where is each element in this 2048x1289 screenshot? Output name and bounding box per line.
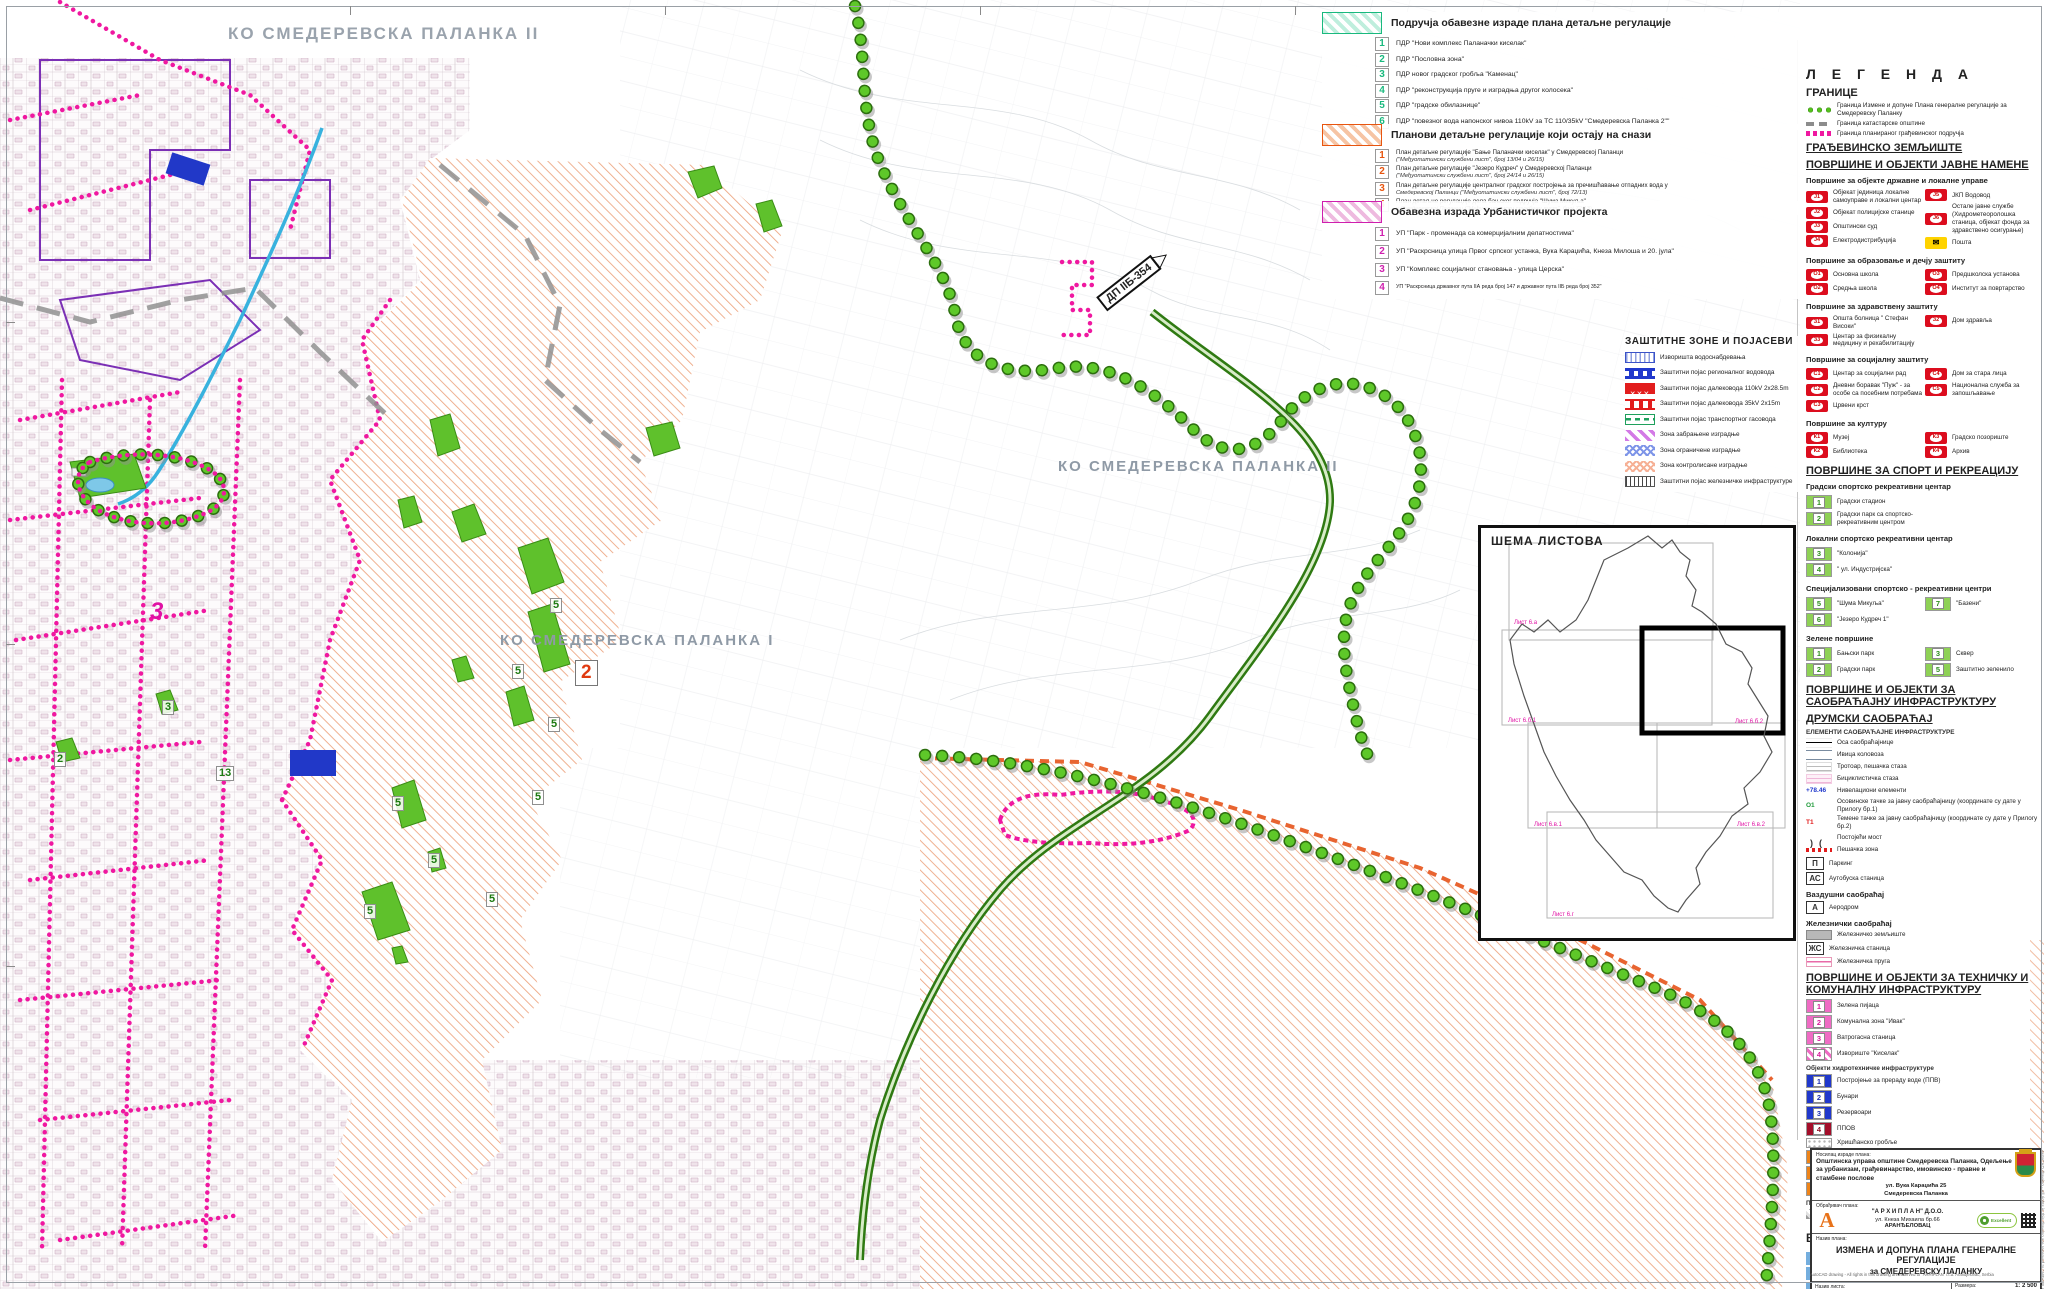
group-title: Специјализовани спортско - рекреативни ц… — [1806, 584, 2042, 593]
legend-item-label: Национална служба за запошљавање — [1952, 382, 2042, 398]
legend-item-label: " ул. Индустријска" — [1837, 566, 1892, 574]
section-title: ДРУМСКИ САОБРАЋАЈ — [1806, 713, 2042, 725]
coat-of-arms-icon — [2015, 1152, 2036, 1177]
num-swatch: 2 — [1806, 1015, 1832, 1029]
holder-name: Општинска управа општине Смедеревска Пал… — [1816, 1158, 2016, 1183]
legend-columns: К1МузејК2БиблиотекаК3Градско позориштеК4… — [1806, 430, 2042, 460]
author-city: АРАНЂЕЛОВАЦ — [1842, 1223, 1973, 1231]
group-title: Површине за објекте државне и локалне уп… — [1806, 176, 2042, 185]
mdots-swatch — [1806, 131, 1832, 136]
num-swatch: 3 — [1925, 647, 1951, 661]
legend-item: +78.46Нивелациони елементи — [1806, 786, 2042, 796]
legend-item: О1Основна школа — [1806, 269, 1923, 281]
legend-item-label: ПДР "градске обилазнице" — [1396, 99, 1480, 109]
badge-code: Ј1 — [1811, 194, 1822, 202]
legend-item-label: Бициклистичка стаза — [1837, 775, 1899, 783]
legend-item-label: Бањски парк — [1837, 650, 1874, 658]
legend-item: О4Институт за повртарство — [1925, 283, 2042, 295]
legend-item-label: Градски парк — [1837, 666, 1875, 674]
legend-item-label: "Шума Микуља" — [1837, 600, 1884, 608]
num-swatch-label: 3 — [1813, 1033, 1825, 1044]
legend-columns: С1Центар за социјални радС2Дневни борава… — [1806, 366, 2042, 414]
num-swatch: 2 — [1806, 512, 1832, 526]
use-badge-icon: Ј3 — [1806, 221, 1828, 233]
scale-label: Размера: — [1955, 1283, 1976, 1289]
legend-item-label: Музеј — [1833, 434, 1849, 442]
legend-columns: 1Бањски парк2Градски парк3Сквер5Заштитно… — [1806, 645, 2042, 679]
legend-item-label: Аеродром — [1829, 904, 1859, 912]
dv110-swatch — [1625, 383, 1655, 394]
item-line1: План детаљне регулације "Бање Паланачки … — [1396, 149, 1623, 157]
num-swatch-label: 1 — [1813, 1076, 1825, 1087]
legend-columns: Ј1Објекат јединица локалне самоуправе и … — [1806, 187, 2042, 250]
legend-item-label: УП "Комплекс социјалног становања - улиц… — [1396, 263, 1564, 273]
group-title: Локални спортско рекреативни центар — [1806, 534, 2042, 543]
num-swatch: 6 — [1806, 613, 1832, 627]
use-badge-icon: С4 — [1925, 368, 1947, 380]
legend-item: 5ПДР "градске обилазнице" — [1375, 99, 1802, 113]
legend-item: Ј6Остале јавне службе (Хидрометеоролошка… — [1925, 203, 2042, 234]
sheet-scheme-box: ШЕМА ЛИСТОВА Лист 6.а Лист 6.б.1 Лист 6.… — [1478, 525, 1796, 941]
use-badge-icon: О4 — [1925, 283, 1947, 295]
plan-sheet: КО СМЕДЕРЕВСКА ПАЛАНКА II КО СМЕДЕРЕВСКА… — [0, 0, 2048, 1289]
group-title: Површине за социјалну заштиту — [1806, 355, 2042, 364]
num-swatch-label: 4 — [1813, 1049, 1825, 1060]
num-swatch-label: 3 — [1813, 1108, 1825, 1119]
legend-item: О3Предшколска установа — [1925, 269, 2042, 281]
legend-item-label: "Језеро Кудреч 1" — [1837, 616, 1889, 624]
green-area-marker: 5 — [548, 717, 560, 732]
legend-item: 3Резервоари — [1806, 1106, 2042, 1120]
legend-item: З1Општа болница " Стефан Високи" — [1806, 315, 1923, 331]
legend-item-label: Предшколска установа — [1952, 271, 2020, 279]
legend-item-label: Заштитни појас далековода 110kV 2x28.5m — [1660, 385, 1789, 393]
legend-item: 2ПДР "Пословна зона" — [1375, 53, 1802, 67]
num-swatch: 2 — [1806, 663, 1832, 677]
legend-item: Железничко земљиште — [1806, 930, 2042, 940]
legend-item: К2Библиотека — [1806, 446, 1923, 458]
legend-item-label: УП "Раскрсница државног пута IIА реда бр… — [1396, 281, 1602, 290]
legend-block-title: Обавезна израда Урбанистичког пројекта — [1391, 206, 1608, 218]
legend-item: 1УП "Парк - променада са комерцијалним д… — [1375, 227, 1802, 241]
legend-item: К4Архив — [1925, 446, 2042, 458]
dv35-swatch — [1625, 399, 1655, 410]
legend-item-label: Библиотека — [1833, 448, 1867, 456]
kontr-swatch — [1625, 461, 1655, 472]
legend-item: 1План детаљне регулације "Бање Паланачки… — [1375, 149, 1802, 164]
legend-item: Граница Измене и допуне Плана генералне … — [1806, 102, 2042, 118]
num-swatch-label: 2 — [1813, 513, 1825, 524]
use-badge-icon: О2 — [1806, 283, 1828, 295]
num-swatch-label: 2 — [1813, 664, 1825, 675]
legend-item-label: Пешачка зона — [1837, 846, 1878, 854]
num-swatch: 2 — [1806, 1090, 1832, 1104]
num-swatch-label: 1 — [1813, 1001, 1825, 1012]
gas-swatch — [1625, 414, 1655, 425]
use-badge-icon: К1 — [1806, 432, 1828, 444]
legend-item: Ј2Објекат полицијске станице — [1806, 207, 1923, 219]
legend-item-label: Граница катастарске општине — [1837, 120, 1925, 128]
use-badge-icon: С1 — [1806, 368, 1828, 380]
num-swatch: 4 — [1806, 1122, 1832, 1136]
item-number: 4 — [1375, 84, 1389, 98]
legend-block-head: Обавезна израда Урбанистичког пројекта — [1322, 201, 1802, 223]
legend-item: З2Дом здравља — [1925, 315, 2042, 327]
green-area-marker: 5 — [392, 796, 404, 811]
legend-item-label: Објекат полицијске станице — [1833, 209, 1915, 217]
legend-item: 2Бунари — [1806, 1090, 2042, 1104]
excellent-badge-icon: Excellent — [1977, 1213, 2017, 1228]
badge-code: О1 — [1811, 271, 1823, 279]
legend-item-label: Зона забрањене изградње — [1660, 431, 1740, 439]
legend-item: Ј4Електродистрибуција — [1806, 235, 1923, 247]
legend-item: 4ППОВ — [1806, 1122, 2042, 1136]
legend-item: С5Национална служба за запошљавање — [1925, 382, 2042, 398]
legend-item-label: ЈКП Водовод — [1952, 192, 1990, 200]
cadastral-label-center: КО СМЕДЕРЕВСКА ПАЛАНКА I — [500, 632, 774, 649]
ped-swatch — [1806, 845, 1832, 855]
badge-code: З1 — [1811, 319, 1823, 327]
izvor-swatch — [1625, 352, 1655, 363]
badge-code: З2 — [1930, 317, 1942, 325]
green-area-marker: 5 — [532, 790, 544, 805]
regvod-swatch — [1625, 368, 1655, 379]
legend-column: 7"Базени" — [1925, 595, 2042, 629]
item-number: 1 — [1375, 149, 1389, 163]
sheet-label: Лист 6.в.1 — [1534, 822, 1562, 828]
legend-item: К1Музеј — [1806, 432, 1923, 444]
section-title: ПОВРШИНЕ ЗА СПОРТ И РЕКРЕАЦИЈУ — [1806, 465, 2042, 477]
legend-item-label: Аутобуска станица — [1829, 875, 1884, 883]
title-block: Носилац израде плана: Општинска управа о… — [1810, 1148, 2042, 1289]
legend-item: 2УП "Раскрсница улица Првог српског уста… — [1375, 245, 1802, 259]
legend-item-label: Зона контролисане изградње — [1660, 462, 1747, 470]
legend-item-label: Железничка станица — [1829, 945, 1890, 953]
legend-item-label: УП "Раскрсница улица Првог српског устан… — [1396, 245, 1674, 255]
legend-item-label: Граница Измене и допуне Плана генералне … — [1837, 102, 2042, 118]
legend-item: ЖСЖелезничка станица — [1806, 942, 2042, 955]
section-title: ПОВРШИНЕ И ОБЈЕКТИ ЗА ТЕХНИЧКУ И КОМУНАЛ… — [1806, 972, 2042, 996]
legend-item-label: Заштитни појас далековода 35kV 2x15m — [1660, 400, 1780, 408]
badge-code: Ј3 — [1811, 223, 1822, 231]
green-area-marker: 5 — [428, 853, 440, 868]
legend-block-urban-projects: Обавезна израда Урбанистичког пројекта1У… — [1322, 201, 1802, 299]
holder-city: Смедеревска Паланка — [1816, 1191, 2016, 1199]
tp-swatch: Т1 — [1806, 818, 1832, 828]
legend-columns: 1Градски стадион2Градски парк са спортск… — [1806, 493, 2042, 529]
num-swatch-label: 6 — [1813, 614, 1825, 625]
legend-item-label: Заштитни појас регионалног водовода — [1660, 369, 1774, 377]
legend-column: З2Дом здравља — [1925, 313, 2042, 350]
use-badge-icon: З3 — [1806, 334, 1828, 346]
sheet-name-label: Назив листа: — [1815, 1284, 1948, 1289]
legend-item: О2Средња школа — [1806, 283, 1923, 295]
plan-name-label: Назив плана: — [1816, 1236, 2036, 1242]
legend-block-head: Подручја обавезне израде плана детаљне р… — [1322, 12, 1802, 34]
legend-item-label: Средња школа — [1833, 285, 1877, 293]
legend-item: С1Центар за социјални рад — [1806, 368, 1923, 380]
legend-item-label: Тротоар, пешачка стаза — [1837, 763, 1907, 771]
legend-item: 2Градски парк — [1806, 663, 1923, 677]
legend-item-label: УП "Парк - променада са комерцијалним де… — [1396, 227, 1574, 237]
item-number: 1 — [1375, 37, 1389, 51]
legend-item: 3УП "Комплекс социјалног становања - ули… — [1375, 263, 1802, 277]
legend-item: Ј1Објекат јединица локалне самоуправе и … — [1806, 189, 1923, 205]
legend-item: 1Бањски парк — [1806, 647, 1923, 661]
num-swatch-label: 5 — [1813, 598, 1825, 609]
legend-item-label: Постојећи мост — [1837, 834, 1882, 842]
use-badge-icon: С3 — [1806, 400, 1828, 412]
num-swatch-label: 1 — [1813, 648, 1825, 659]
legend-item-label: Архив — [1952, 448, 1970, 456]
zabr-swatch — [1625, 430, 1655, 441]
use-badge-icon: З1 — [1806, 317, 1828, 329]
legend-columns: 3"Колонија"4" ул. Индустријска" — [1806, 545, 2042, 579]
legend-item: 4" ул. Индустријска" — [1806, 563, 1923, 577]
num-swatch: 3 — [1806, 547, 1832, 561]
legend-item: 2План детаљне регулације "Језеро Кудреч"… — [1375, 165, 1802, 180]
legend-item-label: План детаљне регулације "Језеро Кудреч" … — [1396, 165, 1592, 180]
sheet-label: Лист 6.а — [1514, 620, 1537, 626]
legend-item: 6"Језеро Кудреч 1" — [1806, 613, 1923, 627]
zel-swatch — [1625, 476, 1655, 487]
legend-column: К3Градско позориштеК4Архив — [1925, 430, 2042, 460]
legend-column: О1Основна школаО2Средња школа — [1806, 267, 1923, 297]
legend-item: 1Постројење за прераду воде (ППВ) — [1806, 1074, 2042, 1088]
hatch-swatch — [1322, 201, 1382, 223]
pdr-zone-marker: 2 — [575, 660, 598, 686]
legend-item: ААеродром — [1806, 901, 2042, 914]
box-swatch: ЖС — [1806, 942, 1824, 955]
ivica-swatch — [1806, 750, 1832, 760]
railland-swatch — [1806, 930, 1832, 940]
legend-item: Тротоар, пешачка стаза — [1806, 762, 2042, 772]
legend-column: 3"Колонија"4" ул. Индустријска" — [1806, 545, 1923, 579]
legend-item-label: Општински суд — [1833, 223, 1877, 231]
niv-swatch: +78.46 — [1806, 786, 1832, 796]
hatch-swatch — [1322, 12, 1382, 34]
legend-item: 3Сквер — [1925, 647, 2042, 661]
legend-panel: Л Е Г Е Н Д АГРАНИЦЕГраница Измене и доп… — [1806, 66, 2042, 1289]
group-title: Железнички саобраћај — [1806, 919, 2042, 928]
badge-code: О2 — [1811, 285, 1823, 293]
osa-swatch — [1806, 738, 1832, 748]
legend-column: К1МузејК2Библиотека — [1806, 430, 1923, 460]
cadastral-label-right: КО СМЕДЕРЕВСКА ПАЛАНКА II — [1058, 458, 1339, 475]
legend-column — [1925, 545, 2042, 579]
num-swatch: 4 — [1806, 563, 1832, 577]
legend-item-label: Дом здравља — [1952, 317, 1992, 325]
legend-column: Ј5ЈКП ВодоводЈ6Остале јавне службе (Хидр… — [1925, 187, 2042, 250]
badge-code: ✉ — [1930, 238, 1942, 247]
section-title: ПОВРШИНЕ И ОБЈЕКТИ ЗА САОБРАЋАЈНУ ИНФРАС… — [1806, 684, 2042, 708]
copyright-note-vertical: AutoCAD drawing - All rights in this dra… — [2040, 1150, 2045, 1289]
num-swatch-label: 4 — [1813, 1124, 1825, 1135]
use-badge-icon: К2 — [1806, 446, 1828, 458]
group-title: Ваздушни саобраћај — [1806, 890, 2042, 899]
item-number: 2 — [1375, 245, 1389, 259]
sheet-label: Лист 6.б.1 — [1508, 718, 1536, 724]
item-number: 3 — [1375, 68, 1389, 82]
num-swatch: 1 — [1806, 999, 1832, 1013]
legend-item-label: "Колонија" — [1837, 550, 1868, 558]
legend-item: О1Осовинске тачке за јавну саобраћајницу… — [1806, 798, 2042, 814]
legend-item-label: Нивелациони елементи — [1837, 787, 1906, 795]
legend-item: З3Центар за физикалну медицину и рехабил… — [1806, 333, 1923, 349]
legend-item: АСАутобуска станица — [1806, 872, 2042, 885]
legend-item: С2Дневни боравак "Пуж" - за особе са пос… — [1806, 382, 1923, 398]
copyright-note: AutoCAD drawing - All rights in this dra… — [1810, 1272, 2044, 1277]
legend-item-label: ПДР "реконструкција пруге и изградња дру… — [1396, 84, 1573, 94]
legend-item: ППаркинг — [1806, 857, 2042, 870]
legend-columns: З1Општа болница " Стефан Високи"З3Центар… — [1806, 313, 2042, 350]
green-area-marker: 2 — [54, 752, 66, 767]
legend-item: Оса саобраћајнице — [1806, 738, 2042, 748]
num-swatch-label: 5 — [1932, 664, 1944, 675]
green-area-marker: 3 — [162, 700, 174, 715]
use-badge-icon: С5 — [1925, 384, 1947, 396]
use-badge-icon: С2 — [1806, 384, 1828, 396]
use-badge-icon: Ј6 — [1925, 213, 1947, 225]
bike-swatch — [1806, 774, 1832, 784]
legend-item-label: Резервоари — [1837, 1109, 1871, 1117]
cem-swatch — [1806, 1138, 1832, 1148]
item-number: 3 — [1375, 263, 1389, 277]
legend-item-label: Црвени крст — [1833, 402, 1869, 410]
legend-item-label: План детаљне регулације централног градс… — [1396, 182, 1668, 197]
item-line2: ("Међуопштински службени лист", број 24/… — [1396, 173, 1592, 180]
author-name: "А Р Х И П Л А Н" Д.О.О. — [1842, 1209, 1973, 1217]
legend-item-label: ПДР "повезног вода напонског нивоа 110kV… — [1396, 115, 1669, 125]
legend-item: Граница планираног грађевинског подручја — [1806, 130, 2042, 138]
legend-item-label: Оса саобраћајнице — [1837, 739, 1894, 747]
box-swatch: П — [1806, 857, 1824, 870]
legend-column: Ј1Објекат јединица локалне самоуправе и … — [1806, 187, 1923, 250]
green-area-marker: 5 — [486, 892, 498, 907]
legend-column: 5"Шума Микуља"6"Језеро Кудреч 1" — [1806, 595, 1923, 629]
legend-item-label: "Базени" — [1956, 600, 1981, 608]
item-number: 5 — [1375, 99, 1389, 113]
group-title: ЕЛЕМЕНТИ САОБРАЋАЈНЕ ИНФРАСТРУКТУРЕ — [1806, 729, 2042, 736]
legend-block-title: Планови детаљне регулације који остају н… — [1391, 129, 1651, 141]
num-swatch: 7 — [1925, 597, 1951, 611]
use-badge-icon: Ј2 — [1806, 207, 1828, 219]
legend-item: 3План детаљне регулације централног град… — [1375, 182, 1802, 197]
num-swatch-label: 1 — [1813, 497, 1825, 508]
badge-code: С2 — [1811, 386, 1823, 394]
legend-item: Граница катастарске општине — [1806, 120, 2042, 128]
item-line1: План детаљне регулације централног градс… — [1396, 182, 1668, 190]
group-title: Зелене површине — [1806, 634, 2042, 643]
badge-code: С5 — [1930, 386, 1942, 394]
green-area-marker: 5 — [512, 664, 524, 679]
arhiplan-logo-icon: А — [1816, 1209, 1838, 1231]
legend-item: Бициклистичка стаза — [1806, 774, 2042, 784]
legend-item: Т1Темене тачке за јавну саобраћајницу (к… — [1806, 815, 2042, 831]
badge-code: Ј5 — [1930, 192, 1941, 200]
num-swatch-label: 2 — [1813, 1017, 1825, 1028]
use-badge-icon: К4 — [1925, 446, 1947, 458]
legend-item: 1Зелена пијаца — [1806, 999, 2042, 1013]
legend-item-label: Градски стадион — [1837, 498, 1886, 506]
badge-code: О3 — [1930, 271, 1942, 279]
section-title: ПОВРШИНЕ И ОБЈЕКТИ ЈАВНЕ НАМЕНЕ — [1806, 159, 2042, 171]
use-badge-icon: Ј1 — [1806, 191, 1828, 203]
legend-item-label: Извориште "Киселак" — [1837, 1050, 1899, 1058]
legend-item-label: Темене тачке за јавну саобраћајницу (коо… — [1837, 815, 2042, 831]
legend-item-label: Центар за социјални рад — [1833, 370, 1906, 378]
legend-item: 4Извориште "Киселак" — [1806, 1047, 2042, 1061]
legend-column: С1Центар за социјални радС2Дневни борава… — [1806, 366, 1923, 414]
legend-item: 5Заштитно зеленило — [1925, 663, 2042, 677]
num-swatch-label: 2 — [1813, 1092, 1825, 1103]
legend-columns: О1Основна школаО2Средња школаО3Предшколс… — [1806, 267, 2042, 297]
item-number: 4 — [1375, 281, 1389, 295]
use-badge-icon: О3 — [1925, 269, 1947, 281]
item-number: 2 — [1375, 165, 1389, 179]
legend-item: 5"Шума Микуља" — [1806, 597, 1923, 611]
legend-item: Пешачка зона — [1806, 845, 2042, 855]
num-swatch-label: 3 — [1813, 548, 1825, 559]
legend-item-label: Изворишта водоснабдевања — [1660, 354, 1745, 362]
box-swatch: А — [1806, 901, 1824, 914]
legend-item: 3Ватрогасна станица — [1806, 1031, 2042, 1045]
qr-code-icon — [2021, 1213, 2036, 1228]
group-title: Објекти хидротехничке инфраструктуре — [1806, 1065, 2042, 1072]
use-badge-icon: З2 — [1925, 315, 1947, 327]
legend-block-title: Подручја обавезне израде плана детаљне р… — [1391, 17, 1671, 29]
legend-item-label: Пошта — [1952, 239, 1971, 247]
legend-item: 7"Базени" — [1925, 597, 2042, 611]
legend-item: 4УП "Раскрсница државног пута IIА реда б… — [1375, 281, 1802, 295]
legend-item-label: Бунари — [1837, 1093, 1858, 1101]
legend-item: 3ПДР новог градског гробља "Каменац" — [1375, 68, 1802, 82]
item-number: 1 — [1375, 227, 1389, 241]
badge-code: О4 — [1930, 285, 1942, 293]
legend-item: Ј5ЈКП Водовод — [1925, 189, 2042, 201]
legend-column: З1Општа болница " Стефан Високи"З3Центар… — [1806, 313, 1923, 350]
legend-item-label: ППОВ — [1837, 1125, 1855, 1133]
legend-item-label: Дневни боравак "Пуж" - за особе са посеб… — [1833, 382, 1923, 398]
badge-code: Ј2 — [1811, 209, 1822, 217]
badge-code: С4 — [1930, 371, 1942, 379]
num-swatch: 3 — [1806, 1106, 1832, 1120]
legend-item-label: Постројење за прераду воде (ППВ) — [1837, 1077, 1940, 1085]
num-swatch-label: 7 — [1932, 598, 1944, 609]
badge-code: З3 — [1811, 337, 1823, 345]
legend-item: Ивица коловоза — [1806, 750, 2042, 760]
sheet-scheme-map — [1481, 528, 1787, 932]
legend-item-label: Електродистрибуција — [1833, 237, 1896, 245]
legend-item-label: Зелена пијаца — [1837, 1002, 1879, 1010]
legend-item-label: Заштитно зеленило — [1956, 666, 2014, 674]
legend-item-label: Зона ограничене изградње — [1660, 447, 1741, 455]
sheet-label: Лист 6.г — [1552, 912, 1574, 918]
num-swatch: 5 — [1925, 663, 1951, 677]
legend-item: 4ПДР "реконструкција пруге и изградња др… — [1375, 84, 1802, 98]
item-number: 2 — [1375, 53, 1389, 67]
num-swatch-label: 4 — [1813, 564, 1825, 575]
sheet-label-active: Лист 6.б.2 — [1735, 719, 1763, 725]
legend-item-label: Центар за физикалну медицину и рехабилит… — [1833, 333, 1923, 349]
legend-item-label: Сквер — [1956, 650, 1974, 658]
badge-code: Ј6 — [1930, 215, 1941, 223]
green-area-marker: 13 — [216, 766, 234, 781]
legend-item: Хришћанско гробље — [1806, 1138, 2042, 1148]
use-badge-icon: Ј4 — [1806, 235, 1828, 247]
legend-block-pdr-areas: Подручја обавезне израде плана детаљне р… — [1322, 12, 1802, 130]
legend-column: 3Сквер5Заштитно зеленило — [1925, 645, 2042, 679]
